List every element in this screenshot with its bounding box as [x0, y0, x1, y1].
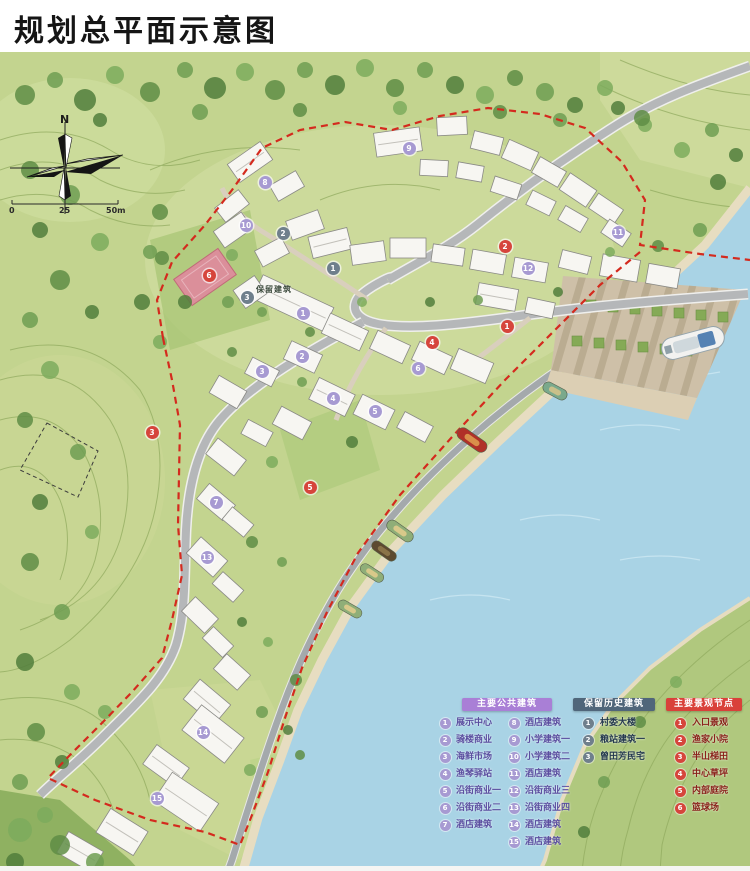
tree — [257, 307, 267, 317]
legend-label-landscape-1: 入口景观 — [692, 717, 728, 729]
building-footprint — [350, 241, 386, 266]
tree — [634, 110, 650, 126]
building-footprint — [437, 116, 468, 136]
legend-label-public-9: 小学建筑一 — [525, 734, 570, 746]
public-marker-5: 5 — [369, 405, 382, 418]
tree — [91, 233, 109, 251]
tree — [493, 105, 507, 119]
tree — [177, 62, 193, 78]
landscape-marker-4: 4 — [426, 336, 439, 349]
public-marker-14: 14 — [197, 726, 210, 739]
landscape-marker-5: 5 — [304, 481, 317, 494]
tree — [605, 247, 615, 257]
legend-label-landscape-5: 内部庭院 — [692, 785, 728, 797]
legend-num-historical-2: 2 — [583, 735, 594, 746]
building — [350, 241, 386, 266]
scale-label-25: 25 — [59, 206, 70, 215]
tree — [476, 86, 494, 104]
legend-num-public-13: 13 — [509, 803, 520, 814]
tree — [236, 63, 254, 81]
tree — [705, 123, 719, 137]
public-marker-12: 12 — [522, 262, 535, 275]
tree — [143, 245, 157, 259]
tree — [41, 361, 59, 379]
tree — [64, 684, 80, 700]
tree — [37, 807, 53, 823]
tree — [507, 70, 523, 86]
public-marker-4: 4 — [327, 392, 340, 405]
legend-num-public-9: 9 — [509, 735, 520, 746]
legend-label-public-12: 沿街商业三 — [525, 785, 570, 797]
tree — [346, 436, 358, 448]
tree — [134, 294, 150, 310]
legend-label-historical-1: 村委大楼 — [600, 717, 636, 729]
legend-num-public-14: 14 — [509, 820, 520, 831]
landscape-marker-1: 1 — [501, 320, 514, 333]
legend-num-public-3: 3 — [440, 752, 451, 763]
building-footprint — [431, 244, 465, 266]
tree — [226, 249, 238, 261]
tree — [155, 251, 169, 265]
legend-label-public-1: 展示中心 — [456, 717, 492, 729]
legend-header-public: 主要公共建筑 — [462, 698, 552, 711]
tree — [710, 174, 726, 190]
tree — [192, 104, 208, 120]
tree — [598, 776, 610, 788]
tree — [93, 113, 107, 127]
tree — [32, 494, 48, 510]
legend-label-public-11: 酒店建筑 — [525, 768, 561, 780]
tree — [54, 604, 70, 620]
legend-label-public-15: 酒店建筑 — [525, 836, 561, 848]
tree — [297, 377, 307, 387]
tree — [152, 204, 168, 220]
tree — [32, 222, 48, 238]
legend-num-landscape-4: 4 — [675, 769, 686, 780]
legend-num-public-2: 2 — [440, 735, 451, 746]
legend-num-public-11: 11 — [509, 769, 520, 780]
building-footprint — [420, 159, 449, 176]
tree — [536, 83, 554, 101]
legend-label-historical-2: 粮站建筑一 — [600, 734, 645, 746]
legend-num-landscape-1: 1 — [675, 718, 686, 729]
legend-label-public-2: 骑楼商业 — [456, 734, 492, 746]
public-marker-6: 6 — [412, 362, 425, 375]
compass-north-label: N — [60, 113, 69, 126]
legend-label-public-14: 酒店建筑 — [525, 819, 561, 831]
legend-label-landscape-4: 中心草坪 — [692, 768, 728, 780]
tree — [553, 287, 563, 297]
legend-num-public-10: 10 — [509, 752, 520, 763]
public-marker-9: 9 — [403, 142, 416, 155]
tree — [283, 725, 293, 735]
tree — [305, 327, 315, 337]
legend-num-public-6: 6 — [440, 803, 451, 814]
tree — [21, 553, 39, 571]
tree — [611, 101, 625, 115]
tree — [297, 62, 313, 78]
tree — [446, 76, 464, 94]
tree — [16, 653, 34, 671]
tree — [293, 103, 307, 117]
building-footprint — [390, 238, 426, 258]
tree — [357, 297, 367, 307]
scale-label-50m: 50m — [106, 206, 125, 215]
preserved-building-label: 保留建筑 — [256, 284, 292, 295]
page-title: 规划总平面示意图 — [14, 6, 278, 50]
legend-label-landscape-6: 篮球场 — [692, 802, 719, 814]
tree — [50, 835, 70, 855]
public-marker-3: 3 — [256, 365, 269, 378]
tree — [85, 305, 99, 319]
legend-num-historical-1: 1 — [583, 718, 594, 729]
tree — [178, 295, 192, 309]
public-marker-8: 8 — [259, 176, 272, 189]
building — [390, 238, 426, 258]
landscape-marker-6: 6 — [203, 269, 216, 282]
legend-num-public-5: 5 — [440, 786, 451, 797]
legend-label-public-3: 海鲜市场 — [456, 751, 492, 763]
building — [420, 159, 449, 176]
legend-num-public-1: 1 — [440, 718, 451, 729]
legend-label-public-10: 小学建筑二 — [525, 751, 570, 763]
tree — [244, 764, 256, 776]
legend-header-landscape: 主要景观节点 — [666, 698, 742, 711]
tree — [265, 80, 285, 100]
tree — [227, 347, 237, 357]
tree — [567, 97, 583, 113]
historical-marker-3: 3 — [241, 291, 254, 304]
tree — [27, 723, 45, 741]
site-plan-page: 规划总平面示意图 N 0 25 50m 保留建筑 123456789101112… — [0, 0, 750, 871]
landscape-marker-2: 2 — [499, 240, 512, 253]
tree — [295, 750, 305, 760]
tree — [417, 62, 433, 78]
legend-label-landscape-2: 渔家小院 — [692, 734, 728, 746]
tree — [263, 637, 273, 647]
legend-num-public-15: 15 — [509, 837, 520, 848]
tree — [356, 59, 374, 77]
public-marker-2: 2 — [296, 350, 309, 363]
legend-num-landscape-6: 6 — [675, 803, 686, 814]
legend-num-landscape-3: 3 — [675, 752, 686, 763]
legend-label-public-8: 酒店建筑 — [525, 717, 561, 729]
public-marker-15: 15 — [151, 792, 164, 805]
legend-header-historical: 保留历史建筑 — [573, 698, 655, 711]
tree — [204, 77, 226, 99]
tree — [140, 82, 160, 102]
tree — [597, 80, 613, 96]
legend-label-historical-3: 曾田芳民宅 — [600, 751, 645, 763]
legend-label-public-6: 沿街商业二 — [456, 802, 501, 814]
tree — [74, 89, 96, 111]
tree — [8, 818, 32, 842]
legend-label-public-7: 酒店建筑 — [456, 819, 492, 831]
legend-num-public-7: 7 — [440, 820, 451, 831]
public-marker-13: 13 — [201, 551, 214, 564]
tree — [12, 774, 28, 790]
tree — [693, 223, 707, 237]
legend-label-public-13: 沿街商业四 — [525, 802, 570, 814]
public-marker-7: 7 — [210, 496, 223, 509]
legend-num-public-12: 12 — [509, 786, 520, 797]
tree — [256, 706, 268, 718]
scale-label-0: 0 — [9, 206, 15, 215]
tree — [237, 617, 247, 627]
legend-label-landscape-3: 半山梯田 — [692, 751, 728, 763]
tree — [85, 525, 99, 539]
tree — [729, 148, 743, 162]
tree — [578, 826, 590, 838]
tree — [22, 312, 38, 328]
legend-num-historical-3: 3 — [583, 752, 594, 763]
tree — [425, 297, 435, 307]
legend-label-public-4: 渔琴驿站 — [456, 768, 492, 780]
building — [431, 244, 465, 266]
legend-num-landscape-5: 5 — [675, 786, 686, 797]
tree — [15, 85, 35, 105]
tree — [325, 75, 345, 95]
historical-marker-2: 2 — [277, 227, 290, 240]
tree — [246, 536, 258, 548]
tree — [386, 79, 404, 97]
tree — [70, 444, 86, 460]
tree — [222, 296, 234, 308]
landscape-marker-3: 3 — [146, 426, 159, 439]
building — [437, 116, 468, 136]
tree — [670, 676, 682, 688]
tree — [393, 101, 407, 115]
tree — [106, 66, 124, 84]
tree — [674, 142, 690, 158]
tree — [50, 270, 70, 290]
legend-num-public-4: 4 — [440, 769, 451, 780]
legend-num-public-8: 8 — [509, 718, 520, 729]
tree — [47, 72, 63, 88]
tree — [277, 557, 287, 567]
legend-label-public-5: 沿街商业一 — [456, 785, 501, 797]
public-marker-10: 10 — [240, 219, 253, 232]
public-marker-1: 1 — [297, 307, 310, 320]
tree — [17, 412, 33, 428]
public-marker-11: 11 — [612, 226, 625, 239]
tree — [98, 705, 112, 719]
tree — [473, 295, 483, 305]
bottom-strip — [0, 866, 750, 871]
historical-marker-1: 1 — [327, 262, 340, 275]
tree — [266, 456, 278, 468]
legend-num-landscape-2: 2 — [675, 735, 686, 746]
